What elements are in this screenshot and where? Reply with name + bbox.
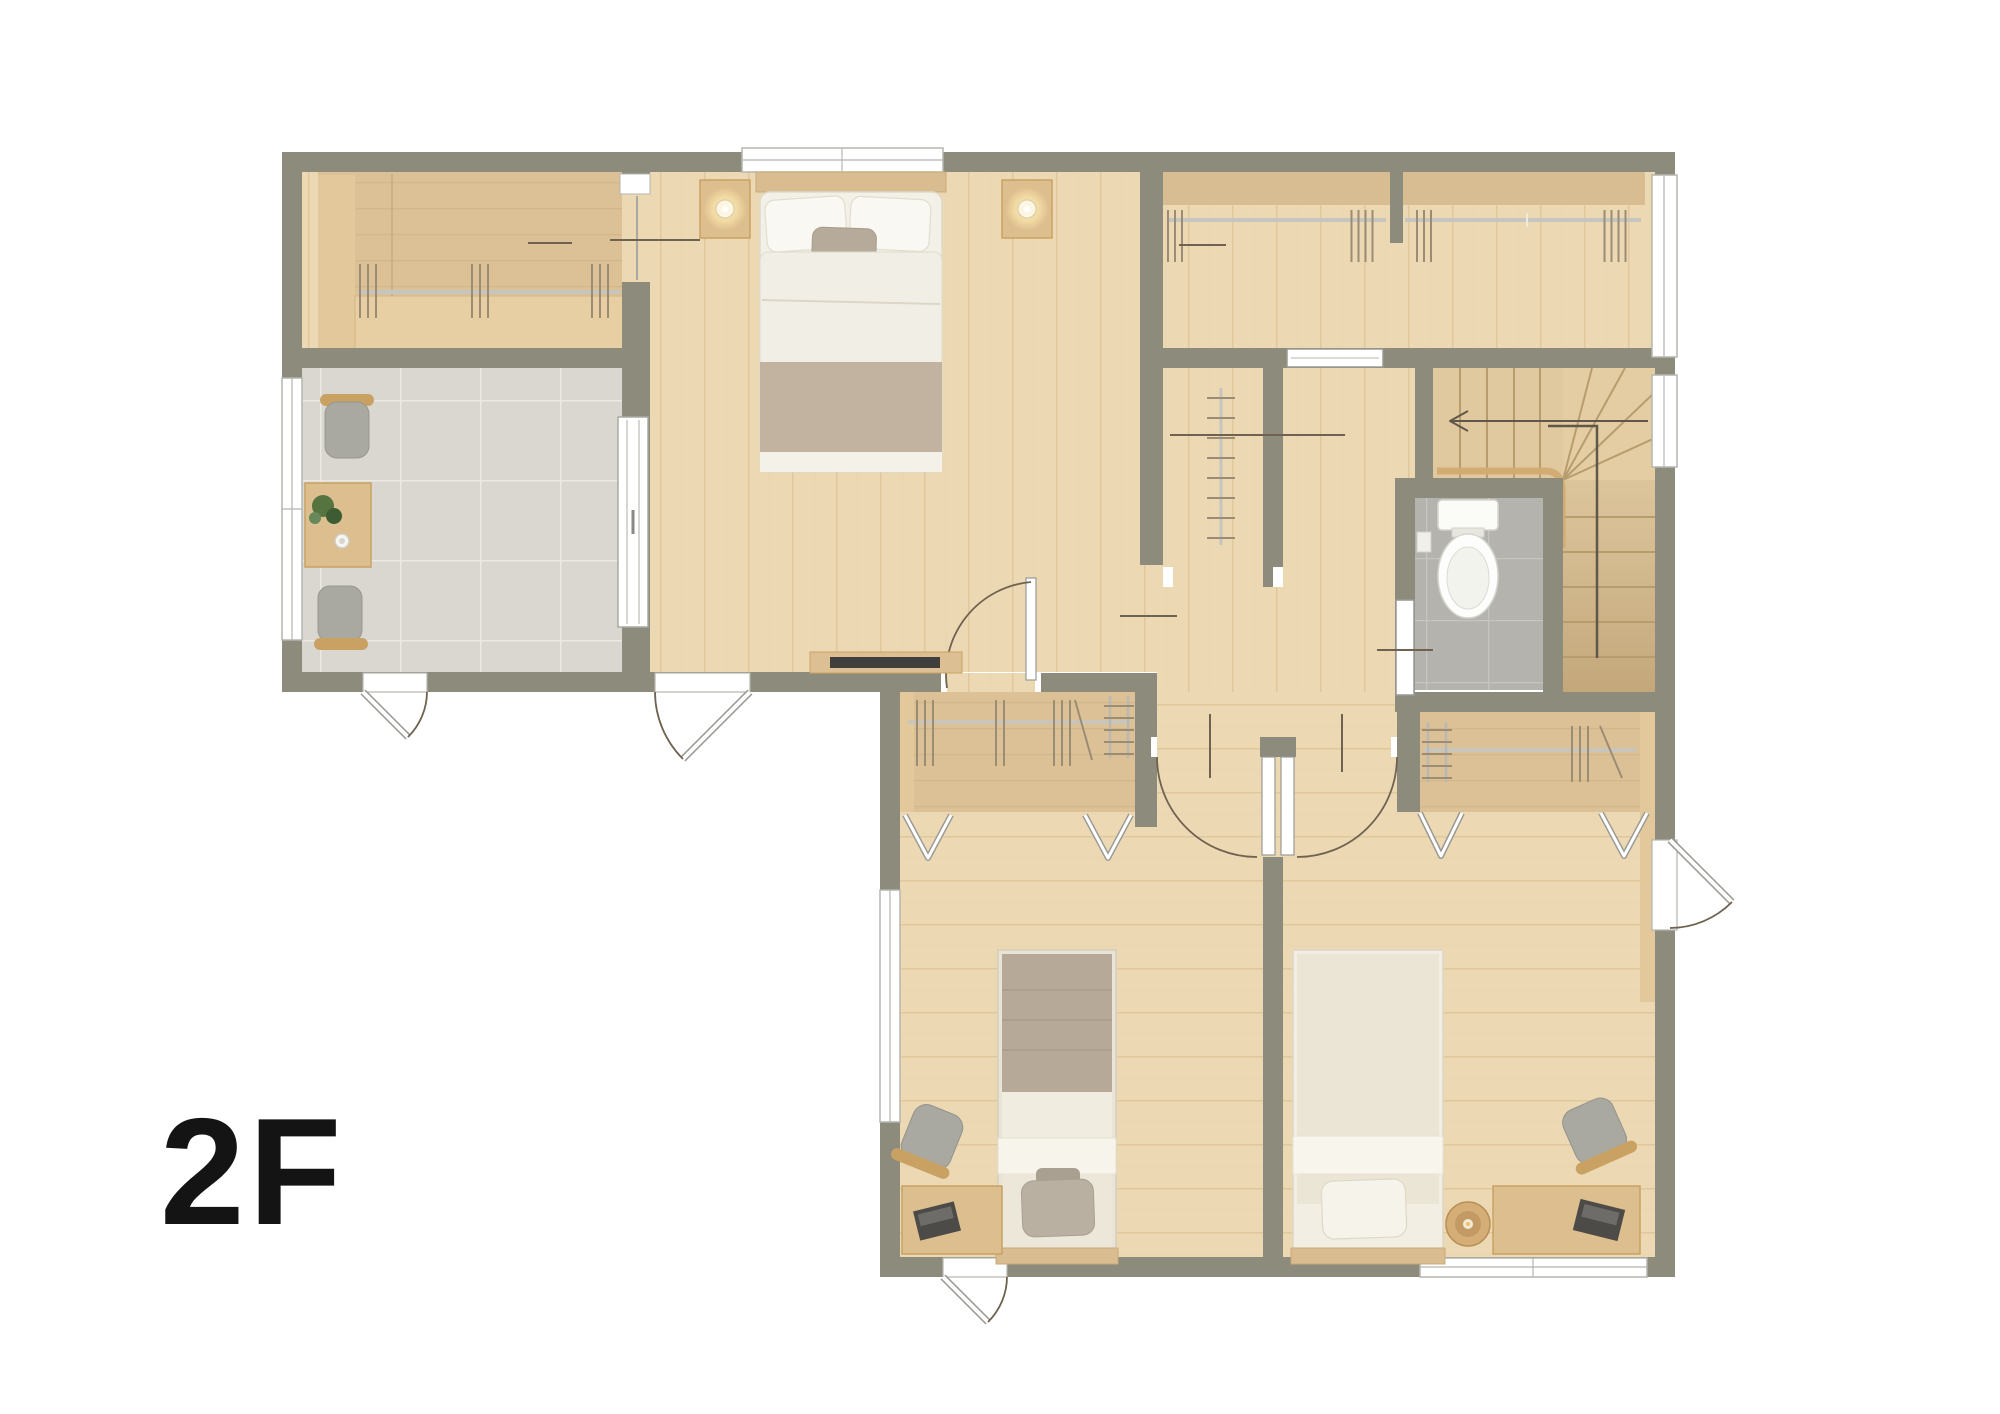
lamp-right-bulb [1024,206,1030,212]
wall-kidR-closet-stub [1397,712,1420,812]
kidR-bed-band [1293,1136,1443,1174]
kidR-ext-door-threshold [1652,840,1677,930]
master-bed-headboard [756,172,946,192]
wall-toilet-east [1543,498,1563,695]
door-leaf [1670,840,1732,902]
wall-wic-south [1140,348,1655,368]
wall-closetA-south [282,348,623,368]
wic-shelf-left [1163,172,1390,205]
closetA-jamb [620,174,650,194]
balcony-chair2-seat [318,586,362,642]
lamp-left-bulb [722,206,728,212]
door-leaf [943,1277,988,1322]
wall-toilet-north [1395,478,1563,498]
kidL-pillow [1021,1179,1095,1237]
wall-kidL-closet-stub [1135,692,1157,827]
balcony-chair2-back [314,638,368,650]
kidR-closet-interior [1420,712,1640,812]
door-arc [655,692,683,759]
door-leaf [683,692,750,759]
wic-shelf-right [1403,172,1645,205]
toilet-tank [1438,500,1498,530]
kidL-bed-sheet [1002,1092,1112,1140]
toilet-door [1396,600,1414,695]
tv-screen [830,657,940,668]
hallcloset-jamb [1163,567,1173,587]
stairs-upper-flight [1433,368,1563,480]
door-leaf [363,692,408,737]
wall-toilet-south [1395,692,1655,712]
plant-leaves [309,512,321,524]
kidR-bed-headboard [1291,1248,1445,1264]
kidR-pillow [1321,1179,1407,1240]
balcony-door-threshold [363,673,427,692]
wall-bedroom-divider [1263,857,1283,1258]
wall-stairs-west [1415,368,1433,480]
master-duvet-foot [760,452,942,472]
toilet-flush-panel [1417,532,1431,552]
balcony-chair-seat [325,402,369,458]
table-cup-inner [339,538,345,544]
master-blanket-band [760,362,942,452]
kidL-bed-blanket [1002,954,1112,1092]
door-leaf-master [1026,578,1036,680]
floor-hall-strip [1157,672,1395,692]
door-leaf-kidR [1281,757,1294,855]
candle-flame [1466,1222,1470,1226]
plant-leaves [326,508,342,524]
kidL-closet-panel [900,692,914,812]
floor-plan-page: 2F [0,0,2000,1414]
master-door-threshold [947,673,1035,692]
wall-wic-stub [1390,172,1403,243]
door-jamb [1151,737,1157,757]
door-arc [1670,902,1732,928]
door-jamb [1391,737,1397,757]
master-ext-door-threshold [655,673,750,692]
wall-master-wic [1140,172,1163,565]
kidL-closet-interior [900,692,1135,812]
door-arc [408,692,427,737]
wall-hallcloset-east [1263,368,1283,587]
kidL-bed-headboard [996,1248,1118,1264]
balcony-table [305,483,371,567]
closet-A-pillar [318,175,355,353]
floor-label: 2F [160,1096,345,1248]
toilet-seat [1447,547,1489,609]
door-post-cap [1260,737,1296,757]
hallcloset-jamb [1273,567,1283,587]
door-leaf-kidL [1262,757,1275,855]
door-arc [988,1277,1007,1322]
